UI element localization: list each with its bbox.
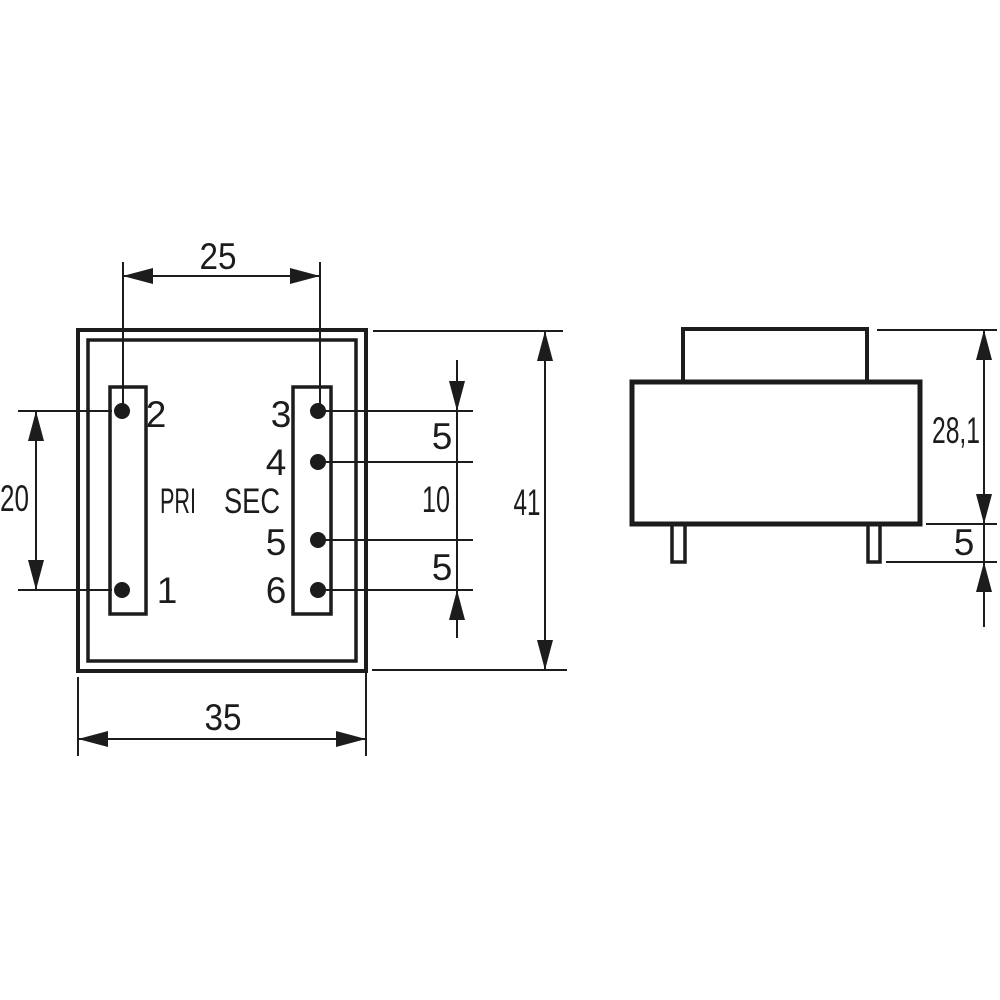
pin5-dot xyxy=(310,532,326,548)
pin4-label: 4 xyxy=(266,442,287,483)
dim-20-label: 20 xyxy=(0,478,29,519)
dim-41-arrow-down-icon xyxy=(537,640,553,670)
dim-35-arrow-right-icon xyxy=(336,731,366,747)
pri-winding-label: PRI xyxy=(160,482,196,521)
dim-5-label: 5 xyxy=(954,522,975,563)
transformer-dimension-drawing: 2 1 3 4 5 6 PRI SEC 25 20 5 xyxy=(0,0,1000,1000)
dim-25-arrow-left-icon xyxy=(123,268,153,284)
dim-20-arrow-up-icon xyxy=(28,411,44,441)
dim-25-label: 25 xyxy=(200,236,237,277)
dim-20-arrow-down-icon xyxy=(28,560,44,590)
top-view: 2 1 3 4 5 6 PRI SEC 25 20 5 xyxy=(0,236,567,756)
dim-281-arrow-up-icon xyxy=(976,330,992,360)
pin6-dot xyxy=(310,582,326,598)
dim-25-arrow-right-icon xyxy=(290,268,320,284)
dim-41-label: 41 xyxy=(514,482,541,523)
pin4-dot xyxy=(310,454,326,470)
dim-281-label: 28,1 xyxy=(932,410,980,451)
pin3-label: 3 xyxy=(271,394,292,435)
pin5-label: 5 xyxy=(266,522,287,563)
pin6-label: 6 xyxy=(266,570,287,611)
pri-pin-strip xyxy=(110,387,146,614)
side-view-top-block-outline xyxy=(683,329,867,382)
pin1-dot xyxy=(114,582,130,598)
side-view-left-pin xyxy=(672,524,685,562)
side-view-body-outline xyxy=(632,382,920,524)
sec-pin-strip xyxy=(293,387,331,614)
dim-35-label: 35 xyxy=(205,697,242,738)
sec-winding-label: SEC xyxy=(224,482,280,521)
dim-sec-top-label: 5 xyxy=(432,416,453,457)
pin1-label: 1 xyxy=(157,570,178,611)
dim-sec-arrow-up-icon xyxy=(449,590,465,620)
dim-41-arrow-up-icon xyxy=(537,331,553,361)
dim-5-arrow-up-icon xyxy=(976,562,992,592)
dim-281-arrow-down-icon xyxy=(976,494,992,524)
side-view-right-pin xyxy=(868,524,880,562)
dim-sec-arrow-down-icon xyxy=(449,381,465,411)
dim-sec-bottom-label: 5 xyxy=(432,547,453,588)
dim-sec-middle-label: 10 xyxy=(422,479,450,520)
top-view-outer-case-outline xyxy=(78,330,366,671)
pin3-dot xyxy=(310,403,326,419)
drawing-svg: 2 1 3 4 5 6 PRI SEC 25 20 5 xyxy=(0,0,1000,1000)
dim-35-arrow-left-icon xyxy=(78,731,108,747)
side-view: 28,1 5 xyxy=(632,329,997,627)
pin2-label: 2 xyxy=(146,394,167,435)
